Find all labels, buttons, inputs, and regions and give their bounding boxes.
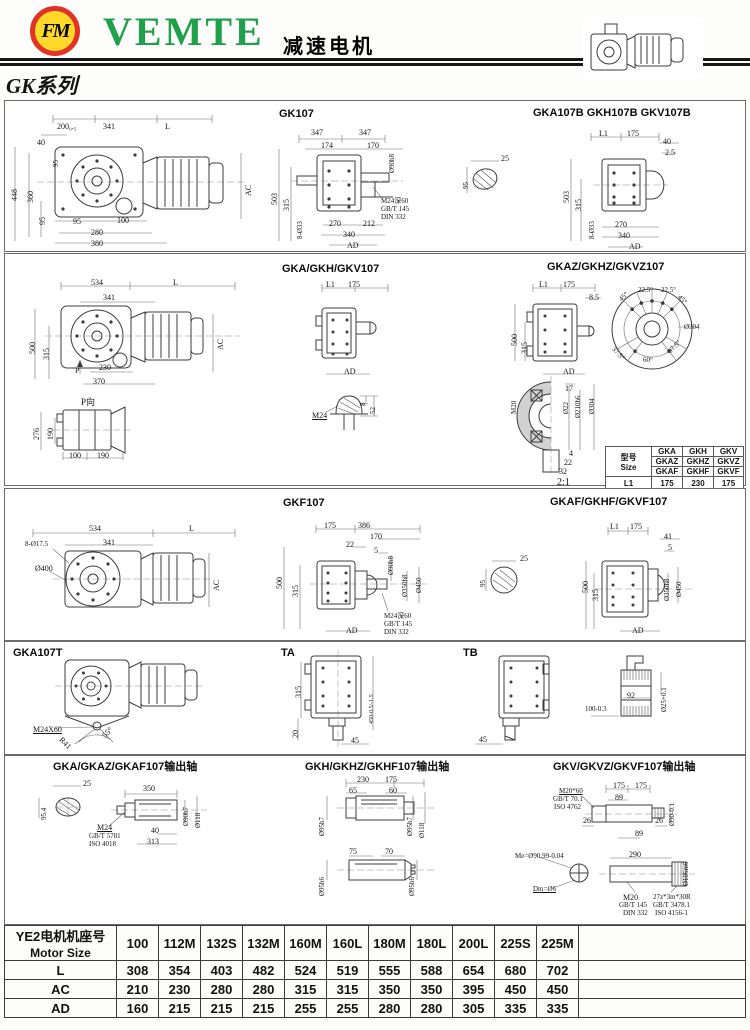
dim-label: 448 [11,189,19,201]
dim-label: 95 [39,217,47,225]
motor-table-header: YE2电机机座号Motor Size [5,926,117,961]
dim-label: DIN 332 [623,910,648,917]
dim-label: 370 [93,378,105,386]
dim-label: DIN 332 [384,629,409,636]
gkv-output-shaft-panel: GKV/GKVZ/GKVF107输出轴 M20*60GB/T 70.1ISO 4… [487,756,743,924]
dim-label: 25 [520,555,528,563]
cell: 450 [495,980,537,999]
dim-label: M24深60 [384,613,411,620]
gearmotor-thumbnail [583,18,703,78]
dim-label: GB/T 5781 [89,833,121,840]
dim-label: Ø95h6 [409,877,416,896]
dim-label: Ø22 [563,402,570,414]
dim-label: Ø90-0.1 [669,803,676,826]
dim-label: 315 [521,342,529,354]
dim-label: 40 [663,138,671,146]
dim-label: Ø304 [589,398,596,414]
dim-label: Ø25+0.1 [661,687,668,712]
dim-label: 280 [91,229,103,237]
size-col-header: 132M [243,926,285,961]
cell: 280 [369,999,411,1018]
dim-label: 175 [385,776,397,784]
dim-label: 52 [370,407,377,414]
cell: 215 [243,999,285,1018]
dim-label: 92 [627,692,635,700]
size-table-header: 型号Size [606,447,652,477]
dim-label: 175 [613,782,625,790]
dim-label: 341 [103,123,115,131]
dim-label: Ø350h8 [664,578,671,601]
dim-label: 500 [276,577,284,589]
cell: 395 [453,980,495,999]
dim-label: 276 [33,428,41,440]
dim-label: 22 [564,459,572,467]
dim-label: 200₀.₅ [57,123,77,131]
size-col-header: 160M [285,926,327,961]
dim-label: 270 [329,220,341,228]
dim-label: 70 [385,848,393,856]
gk107-rear-view-panel: GK107 347347174170Ø90h85033158-Ø33270212… [263,101,463,251]
dim-label: AC [245,185,253,196]
dim-label: Ø400 [35,565,53,573]
dim-label: 100-0.3 [585,706,607,713]
dim-label: ISO 4762 [554,804,581,811]
cell: 654 [453,961,495,980]
dim-label: 190 [97,452,109,460]
dim-label: 8.5 [589,294,599,302]
dim-label: 4 [569,450,573,458]
cell: 215 [201,999,243,1018]
cell: 335 [495,999,537,1018]
dim-label: 500 [29,342,37,354]
brand-wordmark: VEMTE [103,8,265,55]
dim-label: 315 [575,199,583,211]
row5-panel: GKA/GKAZ/GKAF107输出轴 2595.4350M24GB/T 578… [4,755,746,925]
row1-panel: 200₀.₅341L409544836095AC95100280380 GK10… [4,100,746,252]
dim-label: 503 [271,193,279,205]
dim-label: 8-Ø17.5 [25,541,48,548]
cell: 450 [537,980,579,999]
dim-label: 175 [627,130,639,138]
dim-label: Ø118 [419,823,426,838]
cell: 230 [159,980,201,999]
dim-label: AD [344,368,356,376]
dim-label: 60° [643,357,653,364]
cell: GKA [652,447,683,457]
vemte-logo: FM [30,6,80,56]
dim-label: M24 [312,412,327,420]
size-col-header: 200L [453,926,495,961]
dim-label: Ø450 [416,577,423,593]
gka-gkh-gkv107-rear-panel: GKA/GKH/GKV107 L1175AD852M24 [270,254,482,485]
dim-label: 100 [69,452,81,460]
dim-label: 386 [358,522,370,530]
dim-label: 175 [630,523,642,531]
cell: 680 [495,961,537,980]
dim-label: 170 [370,533,382,541]
dim-label: 2.5 [665,149,675,157]
dim-label: ISO 4156-1 [655,910,688,917]
size-col-header: 160L [327,926,369,961]
gkaf-gkhf-gkvf107-drawing [480,489,743,640]
coupling-hub-panel: 100-0.392Ø25+0.1 [563,642,743,754]
cell: GKAZ [652,457,683,467]
dim-label: 25 [83,780,91,788]
dim-label: M20 [511,401,518,414]
dim-label: 315 [592,589,600,601]
cell: 255 [285,999,327,1018]
cell: 403 [201,961,243,980]
size-table-header-en: Size [620,463,636,472]
dim-label: Ø304 [684,324,700,331]
tb-panel: TB 45 [455,642,560,754]
dim-label: 95 [73,218,81,226]
empty-cell [579,961,746,980]
row-label-AD: AD [5,999,117,1018]
dim-label: 95 [53,160,60,167]
cell: 524 [285,961,327,980]
dim-label: 190 [47,428,55,440]
dim-label: 32 [559,468,567,476]
dim-label: 315 [292,585,300,597]
cell: GKVZ [714,457,744,467]
dim-label: Ø90h8 [388,556,395,575]
vemte-logo-monogram: FM [41,20,68,43]
gka-gkh-gkv107-side-panel: 534L341500315ACP230370P向276190100190 [5,254,267,485]
gk107-side-view-panel: 200₀.₅341L409544836095AC95100280380 [7,101,267,251]
dim-label: 340 [343,231,355,239]
gka-output-shaft-panel: GKA/GKAZ/GKAF107输出轴 2595.4350M24GB/T 578… [5,756,295,924]
dim-label: Ø105m6 [683,862,690,887]
size-col-header: 100 [117,926,159,961]
dim-label: M20*60 [559,788,583,795]
dim-label: 5 [668,544,672,552]
dim-label: 95.4 [41,808,48,820]
cell: 210 [117,980,159,999]
gkf107-rear-panel: GKF107 175386170225500315Ø90h8Ø350h8Ø450… [270,489,480,640]
cell: 280 [411,999,453,1018]
dim-label: 270 [615,221,627,229]
dim-label: L [189,525,194,533]
dim-label: 60 [389,787,397,795]
dim-label: AD [347,242,359,250]
gkf107-side-panel: 534L3418-Ø17.5Ø400AC [5,489,270,640]
cell: 555 [369,961,411,980]
dim-label: Dm=Ø6 [533,886,556,893]
row-label-L: L [5,961,117,980]
cell: 588 [411,961,453,980]
catalog-page: { "header": { "brand": "VEMTE", "logo_te… [0,0,750,1030]
dim-label: Ø118 [195,813,202,828]
dim-label: 230 [99,364,111,372]
dim-label: 100 [117,217,129,225]
cell: 354 [159,961,201,980]
cell: 315 [327,980,369,999]
dim-label: P [75,367,79,375]
dim-label: 212 [363,220,375,228]
cell: GKHZ [683,457,714,467]
gka-gkh-gkv107-side-drawing [5,254,267,485]
dim-label: 503 [563,191,571,203]
dim-label: DIN 332 [381,214,406,221]
motor-size-table-wrap: YE2电机机座号Motor Size 100 112M 132S 132M 16… [4,925,746,1018]
tb-drawing [455,642,560,754]
size-col-header: 225S [495,926,537,961]
dim-label: Me=Ø90.99-0.04 [515,853,564,860]
dim-label: AD [563,368,575,376]
cell: 308 [117,961,159,980]
coupling-hub-drawing [563,642,743,754]
dim-label: 26 [655,817,663,825]
dim-label: 315 [283,199,291,211]
p-view-label: P向 [81,398,95,407]
dim-label: 22 [346,541,354,549]
page-header: FM VEMTE 减速电机 GK系列 [0,0,750,100]
cell: 702 [537,961,579,980]
dim-label: 230 [357,776,369,784]
cell: 519 [327,961,369,980]
cell: 280 [201,980,243,999]
dim-label: GB/T 145 [381,206,409,213]
size-col-header: 132S [201,926,243,961]
dim-label: Ø210h6 [575,395,582,418]
row2-panel: 534L341500315ACP230370P向276190100190 GKA… [4,253,746,486]
dim-label: 450-0.5/-1.5 [369,694,375,724]
dim-label: 315 [295,686,303,698]
dim-label: ISO 4018 [89,841,116,848]
dim-label: 175 [563,281,575,289]
dim-label: 65 [349,787,357,795]
dim-label: 341 [103,294,115,302]
series-title: GK系列 [6,70,77,100]
dim-label: Ø90h7 [183,807,190,826]
dim-label: GB/T 3478.1 [653,902,690,909]
dim-label: AC [213,580,221,591]
dim-label: 45 [479,736,487,744]
cell: GKHF [683,467,714,477]
dim-label: 25 [501,155,509,163]
dim-label: 313 [147,838,159,846]
gk107-side-view-drawing [7,101,267,251]
dim-label: 20 [292,730,300,738]
dim-label: AD [632,627,644,635]
cell: 280 [243,980,285,999]
dim-label: 95 [480,580,487,587]
cell: 350 [411,980,453,999]
dim-label: 534 [89,525,101,533]
motor-table-header-cn: YE2电机机座号 [16,929,106,944]
size-col-header: 112M [159,926,201,961]
dim-label: Ø450 [676,581,683,597]
dim-label: M24 [97,824,112,832]
dim-label: 22.5° [638,287,653,294]
cell: 315 [285,980,327,999]
dim-label: 26 [583,817,591,825]
cell: GKV [714,447,744,457]
cell: GKVF [714,467,744,477]
dim-label: GB/T 145 [619,902,647,909]
dim-label: 175 [348,281,360,289]
dim-label: 340 [618,232,630,240]
dim-label: 40 [151,827,159,835]
cell: GKAF [652,467,683,477]
gka107b-panel: GKA107B GKH107B GKV107B 2595L1175402.550… [463,101,743,251]
dim-label: Ø95h7 [407,817,414,836]
dim-label: 89 [615,794,623,802]
gka-gkh-gkv107-rear-drawing [270,254,482,485]
dim-label: 175 [324,522,336,530]
dim-label: L1 [599,130,608,138]
gka107t-panel: GKA107T M24X60R4155° [5,642,275,754]
dim-label: AD [346,627,358,635]
motor-table-header-en: Motor Size [30,946,91,960]
dim-label: 17 [565,385,573,393]
dim-label: 89 [635,830,643,838]
size-col-header: 180M [369,926,411,961]
dim-label: 350 [143,785,155,793]
row4-panel: GKA107T M24X60R4155° TA 31520450-0.5 [4,641,746,755]
gka107t-drawing [5,642,275,754]
dim-label: 170 [367,142,379,150]
cell: 350 [369,980,411,999]
dim-label: Ø350h8 [402,574,409,597]
empty-cell [579,926,746,961]
size-table-header-cn: 型号 [621,453,637,462]
dim-label: L1 [610,523,619,531]
dim-label: 8 [360,403,367,407]
dim-label: 290 [629,851,641,859]
dim-label: 500 [511,334,519,346]
product-title: 减速电机 [283,30,375,59]
dim-label: 360 [27,191,35,203]
dim-label: L [165,123,170,131]
dim-label: 341 [103,539,115,547]
size-col-header: 225M [537,926,579,961]
dim-label: 347 [359,129,371,137]
motor-size-table: YE2电机机座号Motor Size 100 112M 132S 132M 16… [4,925,746,1018]
dim-label: 8-Ø33 [589,221,596,239]
dim-label: AD [629,243,641,251]
dim-label: 347 [311,129,323,137]
dim-label: 40 [37,139,45,147]
dim-label: 315 [43,348,51,360]
row-label-AC: AC [5,980,117,999]
gkf107-rear-drawing [270,489,480,640]
size-variant-table: 型号Size GKAGKHGKV GKAZGKHZGKVZ GKAFGKHFGK… [605,446,744,490]
gk107-rear-view-drawing [263,101,463,251]
dim-label: 95 [463,182,470,189]
size-col-header: 180L [411,926,453,961]
empty-cell [579,999,746,1018]
cell: 482 [243,961,285,980]
gkh-output-shaft-panel: GKH/GKHZ/GKHF107输出轴 2301756560Ø95h7Ø95h7… [297,756,487,924]
row3-panel: 534L3418-Ø17.5Ø400AC GKF107 175386170225… [4,488,746,641]
dim-label: 534 [91,279,103,287]
scale-label: 2:1 [557,478,570,488]
cell: 305 [453,999,495,1018]
cell: GKH [683,447,714,457]
dim-label: 22.5° [661,287,676,294]
cell: 335 [537,999,579,1018]
dim-label: M24深60 [381,198,408,205]
dim-label: 45 [351,737,359,745]
dim-label: 41 [664,533,672,541]
cell: 160 [117,999,159,1018]
gearmotor-thumbnail-drawing [583,18,703,78]
dim-label: 500 [582,581,590,593]
dim-label: M24X60 [33,726,62,734]
dim-label: 174 [321,142,333,150]
dim-label: 8-Ø33 [297,221,304,239]
dim-label: Ø95h7 [319,817,326,836]
dim-label: 75 [349,848,357,856]
ta-panel: TA 31520450-0.5/-1.545 [277,642,392,754]
dim-label: L1 [326,281,335,289]
gkaz-gkhz-gkvz107-panel: GKAZ/GKHZ/GKVZ107 型号Size GKAGKHGKV GKAZG… [485,254,743,485]
dim-label: AC [217,339,225,350]
cell: 215 [159,999,201,1018]
dim-label: 27z*3m*30R [653,894,691,901]
dim-label: Ø90h8 [389,154,396,173]
empty-cell [579,980,746,999]
gka107b-drawing [463,101,743,251]
gkaf-gkhf-gkvf107-panel: GKAF/GKHF/GKVF107 2595L1175415500315Ø350… [480,489,743,640]
dim-label: Ø95h6 [319,877,326,896]
cell: 255 [327,999,369,1018]
dim-label: L [173,279,178,287]
dim-label: GB/T 70.1 [553,796,583,803]
dim-label: 5 [374,547,378,555]
dim-label: GB/T 145 [384,621,412,628]
dim-label: 380 [91,240,103,248]
dim-label: 175 [635,782,647,790]
dim-label: L1 [539,281,548,289]
